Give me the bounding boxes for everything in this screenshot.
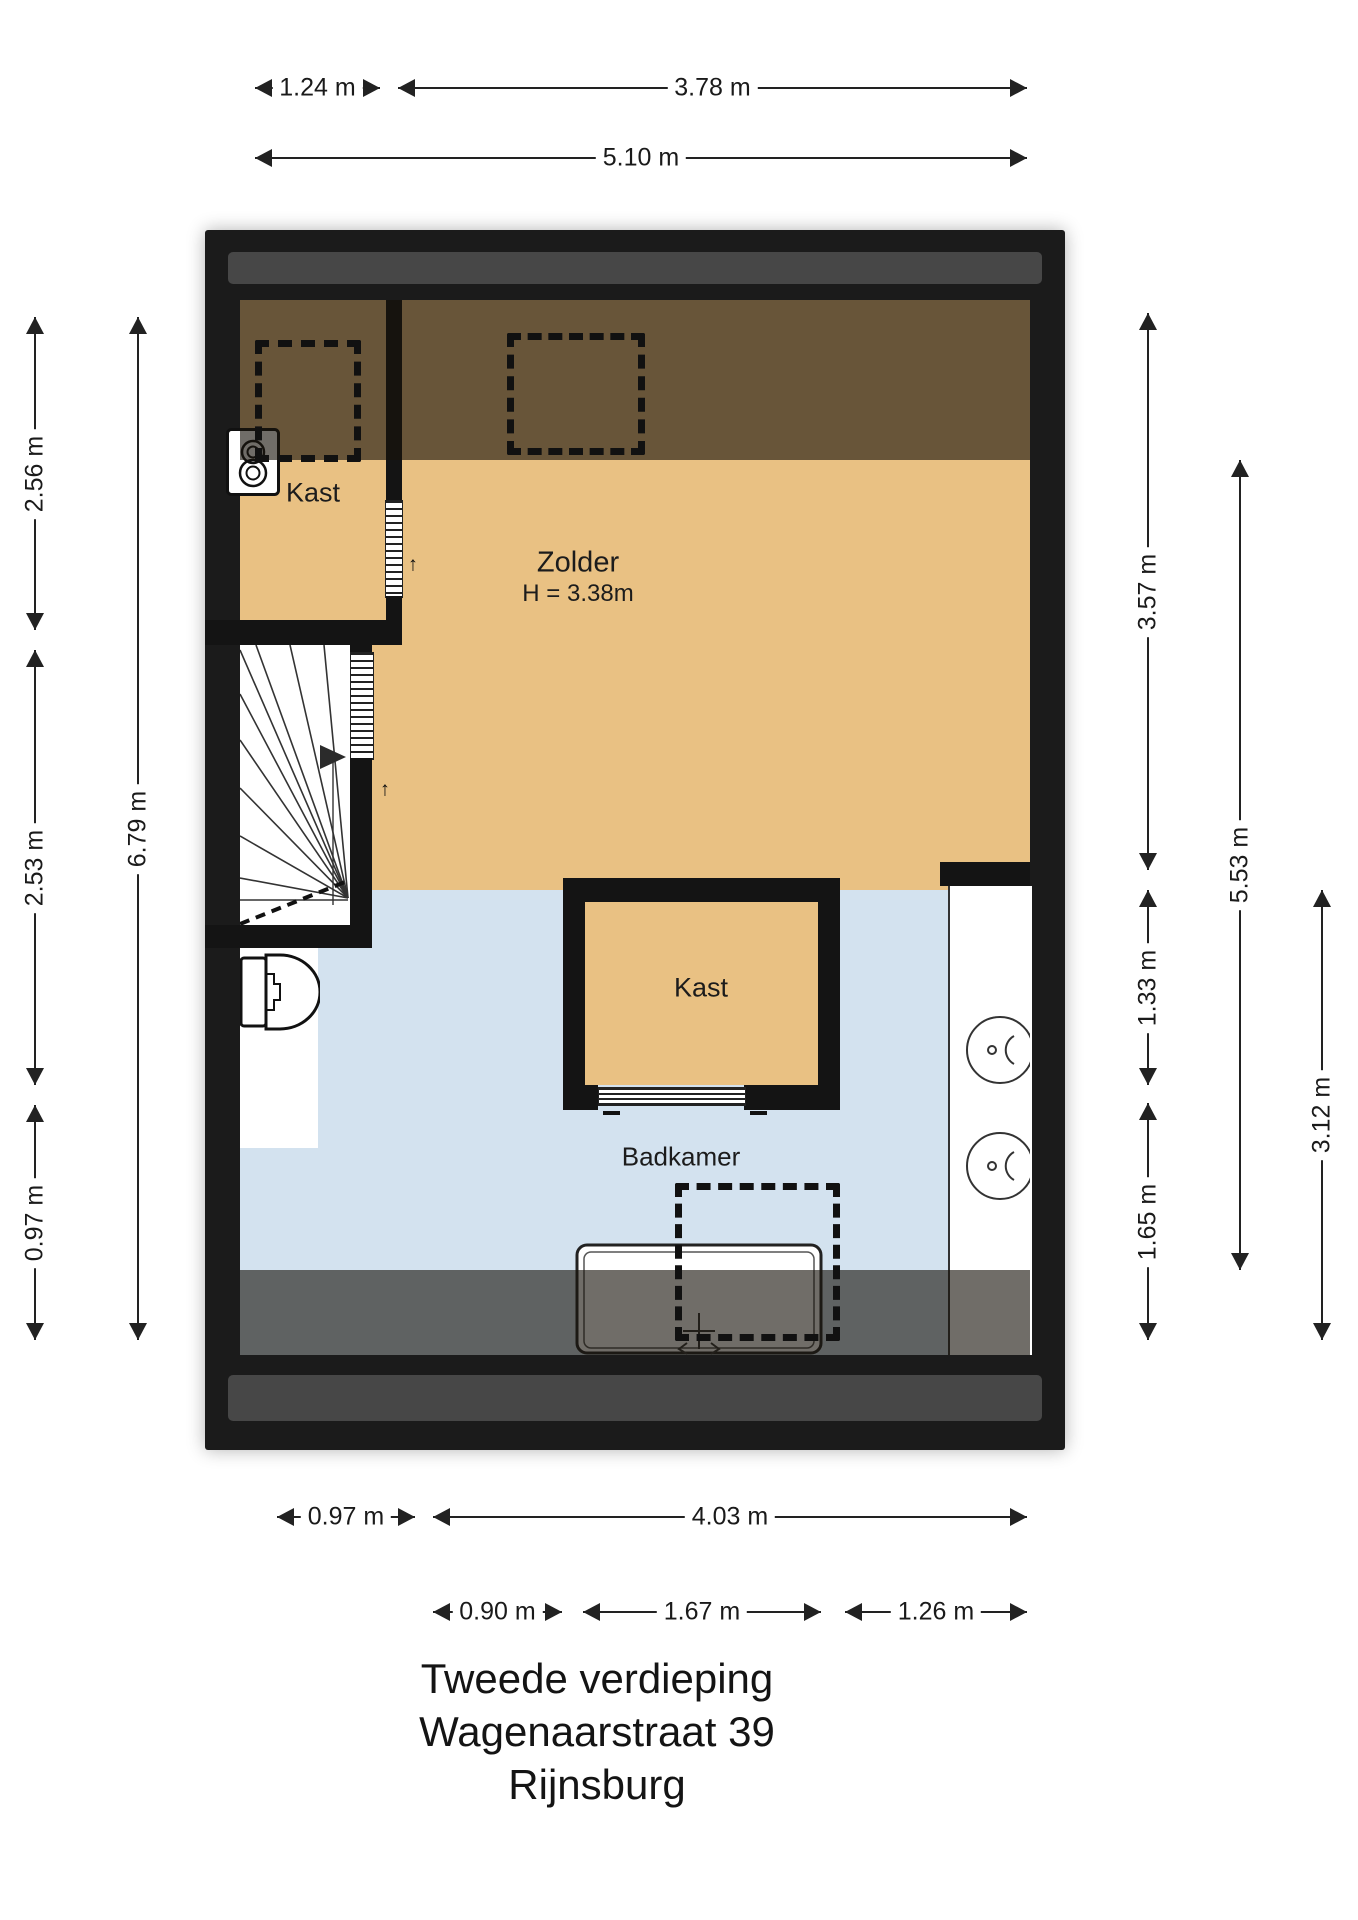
dimension-arrowhead bbox=[1231, 460, 1249, 477]
dimension-arrowhead bbox=[363, 79, 380, 97]
skylight-icon-middle bbox=[507, 333, 645, 455]
dimension-label: 2.56 m bbox=[21, 428, 50, 518]
floorplan-page: ↑ ↑ Kast Zolder H = 3.38m Kast Badkamer … bbox=[0, 0, 1358, 1920]
dimension-arrowhead bbox=[129, 1323, 147, 1340]
dimension-arrowhead bbox=[1231, 1253, 1249, 1270]
dimension-arrowhead bbox=[398, 1508, 415, 1526]
room-label-kast-top: Kast bbox=[286, 478, 340, 509]
room-label-kast-bathroom: Kast bbox=[674, 973, 728, 1004]
dimension-label: 3.12 m bbox=[1308, 1070, 1337, 1160]
dimension-arrowhead bbox=[398, 79, 415, 97]
floorplan-outline: ↑ ↑ Kast Zolder H = 3.38m Kast Badkamer bbox=[205, 230, 1065, 1450]
plan-title: Tweede verdieping Wagenaarstraat 39 Rijn… bbox=[419, 1652, 775, 1811]
dimension-label: 6.79 m bbox=[124, 783, 153, 873]
dimension-label: 3.57 m bbox=[1134, 546, 1163, 636]
wall-kast2-bottom-right bbox=[744, 1085, 840, 1110]
dimension-arrowhead bbox=[1010, 1508, 1027, 1526]
door-arrow-icon-1: ↑ bbox=[408, 554, 418, 577]
room-label-badkamer: Badkamer bbox=[622, 1142, 741, 1173]
dimension-label: 1.26 m bbox=[891, 1598, 981, 1627]
dimension-arrowhead bbox=[1139, 1103, 1157, 1120]
wall-kast-bottom bbox=[205, 620, 402, 645]
dimension-arrowhead bbox=[583, 1603, 600, 1621]
dimension-arrowhead bbox=[1139, 1323, 1157, 1340]
wall-kast2-left bbox=[563, 878, 585, 1110]
dimension-arrowhead bbox=[255, 149, 272, 167]
door-tick-left bbox=[603, 1111, 620, 1115]
dimension-label: 0.90 m bbox=[452, 1598, 542, 1627]
skylight-icon-bathroom bbox=[675, 1183, 840, 1341]
plan-title-line2: Wagenaarstraat 39 bbox=[419, 1705, 775, 1758]
dimension-arrowhead bbox=[26, 1105, 44, 1122]
dimension-label: 5.10 m bbox=[596, 144, 686, 173]
dimension-arrowhead bbox=[26, 613, 44, 630]
plan-title-line1: Tweede verdieping bbox=[419, 1652, 775, 1705]
dimension-label: 1.67 m bbox=[657, 1598, 747, 1627]
dimension-arrowhead bbox=[1139, 890, 1157, 907]
dimension-arrowhead bbox=[277, 1508, 294, 1526]
dimension-label: 4.03 m bbox=[685, 1503, 775, 1532]
roof-edge-strip-bottom bbox=[228, 1375, 1042, 1421]
dimension-label: 5.53 m bbox=[1226, 820, 1255, 910]
wall-kast2-top bbox=[563, 878, 840, 902]
skylight-icon-left bbox=[255, 340, 361, 462]
low-headroom-overlay-bottom bbox=[240, 1270, 1030, 1355]
dimension-arrowhead bbox=[1010, 149, 1027, 167]
dimension-arrowhead bbox=[804, 1603, 821, 1621]
dimension-label: 1.24 m bbox=[272, 74, 362, 103]
dimension-label: 1.65 m bbox=[1134, 1176, 1163, 1266]
dimension-arrowhead bbox=[1139, 313, 1157, 330]
dimension-arrowhead bbox=[1139, 853, 1157, 870]
wall-kast2-right bbox=[818, 878, 840, 1110]
door-tick-right bbox=[750, 1111, 767, 1115]
dimension-arrowhead bbox=[545, 1603, 562, 1621]
door-arrow-icon-2: ↑ bbox=[380, 779, 390, 802]
dimension-label: 0.97 m bbox=[21, 1177, 50, 1267]
kast2-sliding-door bbox=[598, 1087, 746, 1106]
roof-edge-strip-top bbox=[228, 252, 1042, 284]
toilet-icon bbox=[240, 952, 320, 1032]
room-label-zolder-height: H = 3.38m bbox=[522, 580, 633, 608]
wall-kast2-bottom-left bbox=[563, 1085, 598, 1110]
wall-stair-right-stub bbox=[350, 645, 372, 652]
dimension-label: 1.33 m bbox=[1134, 942, 1163, 1032]
dimension-arrowhead bbox=[1010, 79, 1027, 97]
wall-stair-bottom bbox=[205, 925, 372, 948]
plan-interior: ↑ ↑ Kast Zolder H = 3.38m Kast Badkamer bbox=[240, 300, 1030, 1355]
kast-door bbox=[385, 500, 403, 598]
dimension-arrowhead bbox=[1139, 1068, 1157, 1085]
dimension-label: 3.78 m bbox=[667, 74, 757, 103]
plan-title-line3: Rijnsburg bbox=[419, 1758, 775, 1811]
wall-vanity-stub bbox=[940, 862, 1030, 886]
dimension-arrowhead bbox=[26, 317, 44, 334]
dimension-arrowhead bbox=[1010, 1603, 1027, 1621]
wall-stair-right bbox=[350, 758, 372, 948]
stairs-icon bbox=[240, 645, 352, 927]
dimension-arrowhead bbox=[26, 1323, 44, 1340]
dimension-arrowhead bbox=[129, 317, 147, 334]
dimension-arrowhead bbox=[1313, 1323, 1331, 1340]
dimension-label: 0.97 m bbox=[301, 1503, 391, 1532]
dimension-arrowhead bbox=[1313, 890, 1331, 907]
stair-door bbox=[350, 652, 374, 760]
dimension-arrowhead bbox=[255, 79, 272, 97]
dimension-arrowhead bbox=[433, 1508, 450, 1526]
room-label-zolder: Zolder bbox=[537, 547, 619, 580]
dimension-label: 2.53 m bbox=[21, 822, 50, 912]
dimension-arrowhead bbox=[26, 650, 44, 667]
dimension-arrowhead bbox=[433, 1603, 450, 1621]
dimension-arrowhead bbox=[26, 1068, 44, 1085]
dimension-arrowhead bbox=[845, 1603, 862, 1621]
